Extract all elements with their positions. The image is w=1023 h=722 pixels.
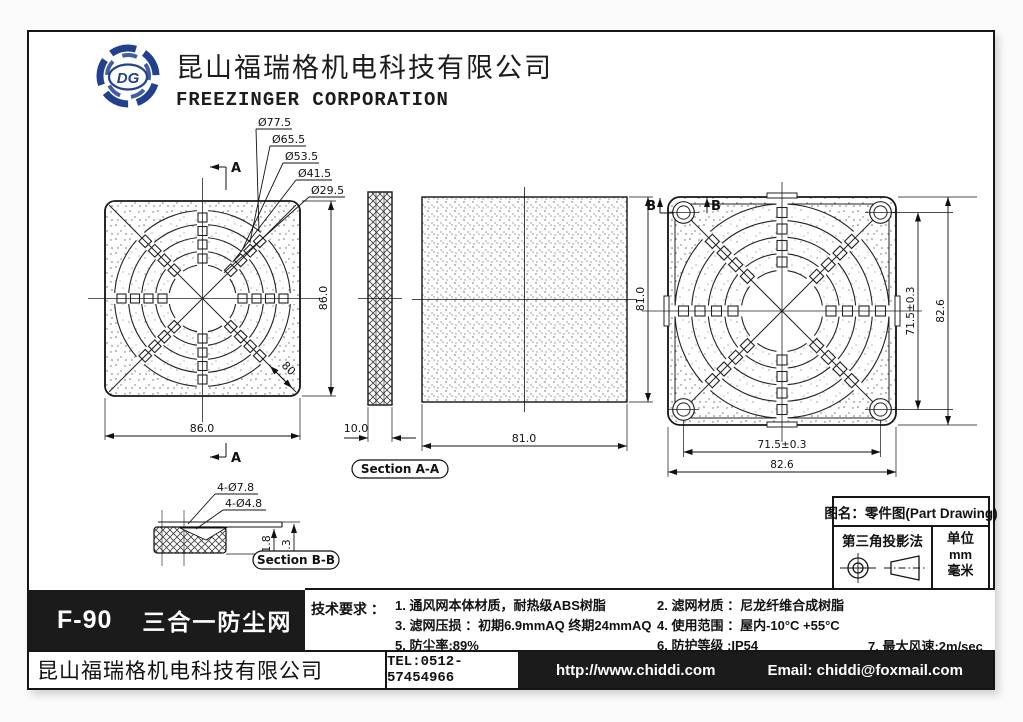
logo-monogram: DG — [117, 70, 140, 87]
dim-right-hole-span-h: 71.5±0.3 — [758, 439, 807, 451]
dim-right-hole-span-v: 71.5±0.3 — [905, 287, 917, 336]
section-marker-a-top: A — [231, 161, 241, 176]
tech-column-2: 2. 滤网材质 ：尼龙纤维合成树脂 4. 使用范围 ：屋内-10°C +55°C… — [657, 596, 844, 656]
left-view-drawing — [88, 178, 322, 422]
callout-dia-5: Ø29.5 — [311, 184, 344, 197]
company-logo: DG — [90, 42, 166, 110]
footer-bar: 昆山福瑞格机电科技有限公司 TEL:0512-57454966 http://w… — [29, 650, 993, 688]
filter-view: 81.0 81.0 — [412, 187, 653, 451]
title-block: 图名：零件图(Part Drawing) 第三角投影法 — [832, 496, 990, 592]
product-name: 三合一防尘网 — [142, 603, 292, 637]
company-header: 昆山福瑞格机电科技有限公司 FREEZINGER CORPORATION — [176, 46, 553, 111]
section-marker-a-bottom: A — [231, 451, 241, 466]
company-name-en: FREEZINGER CORPORATION — [176, 89, 553, 111]
tech-item-2: 2. 滤网材质 ：尼龙纤维合成树脂 — [657, 596, 844, 616]
drawing-name-label: 图名：零件图(Part Drawing) — [834, 498, 988, 527]
third-angle-target-icon — [839, 552, 877, 584]
tech-item-3: 3. 滤网压损 ：初期6.9mmAQ 终期24mmAQ — [395, 616, 651, 636]
product-bar: F-90 三合一防尘网 — [29, 590, 305, 650]
section-marker-b-right: B — [711, 199, 721, 214]
unit-label: 单位 — [947, 531, 974, 547]
unit-cn: 毫米 — [947, 563, 973, 579]
dim-section-thickness: 10.0 — [344, 422, 369, 435]
projection-cell: 第三角投影法 — [834, 527, 933, 588]
tech-label: 技术要求 ： — [311, 599, 385, 619]
footer-email: Email: chiddi@foxmail.com — [767, 662, 963, 679]
callout-dia-4: Ø41.5 — [298, 167, 331, 180]
projection-method-label: 第三角投影法 — [842, 530, 923, 550]
footer-website: http://www.chiddi.com — [556, 662, 715, 679]
footer-tel: TEL:0512-57454966 — [387, 652, 518, 688]
callout-dia-2: Ø65.5 — [272, 133, 305, 146]
section-b-label: Section B-B — [257, 553, 335, 567]
tech-item-4: 4. 使用范围 ：屋内-10°C +55°C — [657, 616, 844, 636]
section-a-label: Section A-A — [361, 462, 440, 476]
footer-contact-strip: http://www.chiddi.com Email: chiddi@foxm… — [518, 652, 993, 688]
unit-mm: mm — [949, 547, 972, 563]
third-angle-cone-icon — [883, 554, 927, 582]
unit-cell: 单位 mm 毫米 — [933, 527, 988, 588]
product-model: F-90 — [57, 606, 112, 635]
detail-dim-small: 1.8 — [260, 535, 273, 553]
tech-item-1: 1. 通风网本体材质，耐热级ABS树脂 — [395, 596, 651, 616]
detail-callout-outer: 4-Ø7.8 — [217, 481, 254, 494]
detail-section-b: 4-Ø7.8 4-Ø4.8 1.8 4.3 Section B-B — [154, 481, 339, 569]
callout-dia-1: Ø77.5 — [258, 116, 291, 129]
callout-dia-3: Ø53.5 — [285, 150, 318, 163]
dim-right-width: 82.6 — [770, 459, 794, 471]
page: DG 昆山福瑞格机电科技有限公司 FREEZINGER CORPORATION — [0, 0, 1023, 722]
dim-left-width: 86.0 — [190, 422, 215, 435]
right-view-drawing — [642, 182, 922, 442]
dim-filter-height: 81.0 — [634, 287, 647, 312]
detail-callout-inner: 4-Ø4.8 — [225, 497, 262, 510]
dim-filter-width: 81.0 — [512, 432, 537, 445]
dim-left-height: 86.0 — [317, 286, 330, 311]
company-name-cn: 昆山福瑞格机电科技有限公司 — [176, 46, 553, 85]
section-marker-b-left: B — [646, 199, 656, 214]
footer-company-name: 昆山福瑞格机电科技有限公司 — [29, 652, 387, 688]
dim-right-height: 82.6 — [935, 299, 947, 323]
tech-requirements: 技术要求 ： 1. 通风网本体材质，耐热级ABS树脂 3. 滤网压损 ：初期6.… — [305, 588, 995, 650]
tech-column-1: 1. 通风网本体材质，耐热级ABS树脂 3. 滤网压损 ：初期6.9mmAQ 终… — [395, 596, 651, 656]
